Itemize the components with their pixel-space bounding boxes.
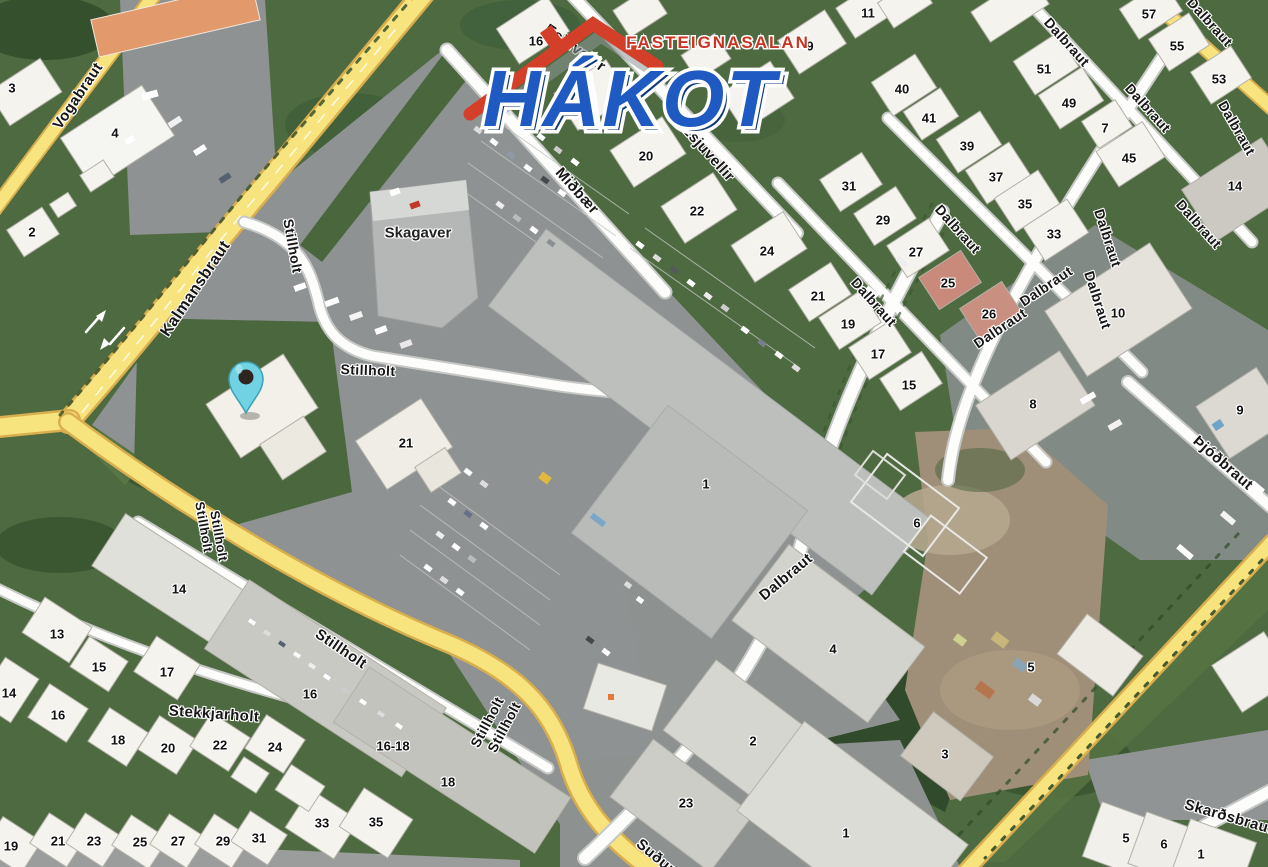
map-graphics xyxy=(0,0,1268,867)
satellite-map[interactable]: VogabrautKalmansbrautStillholtStillholtS… xyxy=(0,0,1268,867)
